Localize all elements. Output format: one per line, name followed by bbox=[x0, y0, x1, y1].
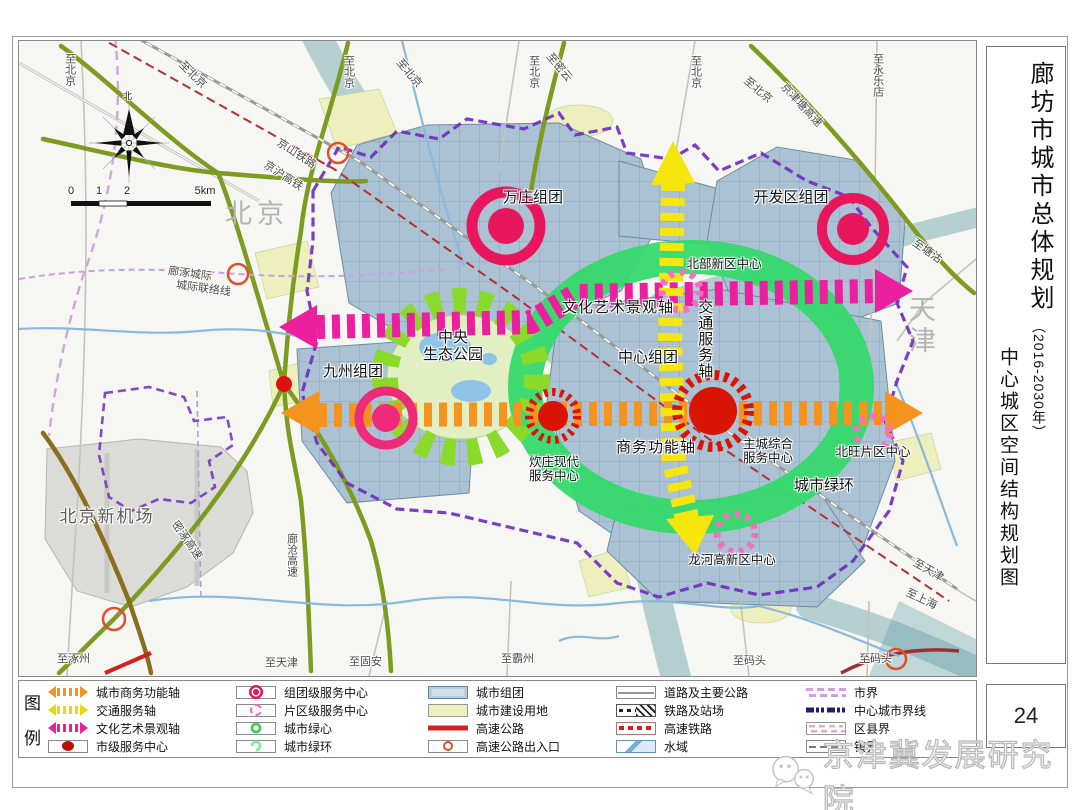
legend-label: 城市绿环 bbox=[284, 738, 332, 755]
legend-item: 高速公路 bbox=[428, 721, 606, 736]
legend-item: 文化艺术景观轴 bbox=[48, 721, 226, 736]
legend-swatch-town-boundary bbox=[806, 740, 846, 753]
legend-item: 市界 bbox=[806, 685, 976, 700]
legend-swatch-business-axis bbox=[48, 686, 88, 699]
legend-item: 高速铁路 bbox=[616, 721, 796, 736]
legend-label: 铁路及站场 bbox=[664, 702, 724, 719]
legend-item: 片区级服务中心 bbox=[236, 703, 418, 718]
legend-label: 文化艺术景观轴 bbox=[96, 720, 180, 737]
legend-swatch-construction-land bbox=[428, 704, 468, 717]
scale-tick-1: 1 bbox=[96, 185, 102, 198]
legend-swatch-district-center bbox=[236, 704, 276, 717]
legend-swatch-county-boundary bbox=[806, 722, 846, 735]
legend-item: 城市建设用地 bbox=[428, 703, 606, 718]
edge-label-b4: 至霸州 bbox=[501, 653, 534, 666]
legend-item: 道路及主要公路 bbox=[616, 685, 796, 700]
legend-label: 交通服务轴 bbox=[96, 702, 156, 719]
label-airport: 北京新机场 bbox=[60, 507, 155, 527]
map-area: 北 0 1 2 5km 北京 天津 北京新机场 万庄组团 开发区组团 九州组团 … bbox=[18, 40, 977, 677]
legend-swatch-central-city-boundary bbox=[806, 704, 846, 717]
legend-label: 城市绿心 bbox=[284, 720, 332, 737]
label-road-langcang: 廊沧高速 bbox=[285, 533, 298, 577]
legend-item: 交通服务轴 bbox=[48, 703, 226, 718]
planning-sheet: 北 0 1 2 5km 北京 天津 北京新机场 万庄组团 开发区组团 九州组团 … bbox=[0, 0, 1080, 810]
map-canvas bbox=[19, 41, 976, 676]
legend-item: 城市组团 bbox=[428, 685, 606, 700]
legend-swatch-green-heart bbox=[236, 722, 276, 735]
edge-label-t4: 至北京 bbox=[527, 55, 540, 88]
legend-item: 城市绿环 bbox=[236, 739, 418, 754]
legend-swatch-cluster-center bbox=[236, 686, 276, 699]
edge-label-b1: 至涿州 bbox=[57, 653, 90, 666]
title-panel: 廊坊市城市总体规划（2016-2030年） 中心城区空间结构规划图 bbox=[986, 46, 1066, 664]
label-cluster-jiuzhou: 九州组团 bbox=[323, 363, 383, 380]
legend-label: 高速铁路 bbox=[664, 720, 712, 737]
legend-label: 区县界 bbox=[854, 720, 890, 737]
legend-label: 高速公路出入口 bbox=[476, 738, 560, 755]
label-center-chuizhuang: 炊庄现代 服务中心 bbox=[529, 455, 579, 484]
legend-label: 片区级服务中心 bbox=[284, 702, 368, 719]
edge-label-l1: 至北京 bbox=[63, 53, 76, 86]
legend-swatch-expressway-exit bbox=[428, 740, 468, 753]
label-cluster-zhongxin: 中心组团 bbox=[618, 349, 678, 366]
legend-item: 组团级服务中心 bbox=[236, 685, 418, 700]
legend-item: 城市商务功能轴 bbox=[48, 685, 226, 700]
edge-label-t8: 至永乐店 bbox=[871, 53, 884, 97]
legend-label: 市级服务中心 bbox=[96, 738, 168, 755]
legend-swatch-city-boundary bbox=[806, 686, 846, 699]
legend-column-1: 城市商务功能轴 交通服务轴 文化艺术景观轴 市级服务中心 bbox=[48, 685, 226, 754]
edge-label-t6: 至北京 bbox=[689, 55, 702, 88]
legend-item: 区县界 bbox=[806, 721, 976, 736]
legend-item: 中心城市界线 bbox=[806, 703, 976, 718]
title-subtitle: 中心城区空间结构规划图 bbox=[994, 347, 1021, 589]
label-axis-business: 商务功能轴 bbox=[616, 439, 696, 456]
scale-tick-0: 0 bbox=[68, 185, 74, 198]
page-title: 廊坊市城市总体规划（2016-2030年） bbox=[1022, 61, 1057, 440]
legend-item: 城市绿心 bbox=[236, 721, 418, 736]
label-center-zhucheng: 主城综合 服务中心 bbox=[743, 437, 793, 466]
legend-swatch-green-ring bbox=[236, 740, 276, 753]
legend-swatch-city-center bbox=[48, 740, 88, 753]
label-center-beibu: 北部新区中心 bbox=[686, 257, 761, 271]
legend-panel: 图 例 城市商务功能轴 交通服务轴 文化艺术景观轴 市级服务中心 组团级服务中心… bbox=[18, 680, 977, 758]
legend-item: 镇界 bbox=[806, 739, 976, 754]
legend-swatch-traffic-axis bbox=[48, 704, 88, 717]
label-axis-traffic: 交通服务轴 bbox=[696, 299, 713, 379]
scale-tick-5km: 5km bbox=[195, 185, 216, 198]
legend-swatch-expressway bbox=[428, 722, 468, 735]
edge-label-b2: 至天津 bbox=[265, 657, 298, 670]
legend-swatch-hsr bbox=[616, 722, 656, 735]
legend-swatch-road bbox=[616, 686, 656, 699]
edge-label-b3: 至固安 bbox=[349, 656, 382, 669]
legend-column-5: 市界 中心城市界线 区县界 镇界 bbox=[806, 685, 976, 754]
page-number: 24 bbox=[986, 684, 1066, 748]
label-cluster-kaifaqu: 开发区组团 bbox=[753, 189, 828, 206]
legend-column-2: 组团级服务中心 片区级服务中心 城市绿心 城市绿环 bbox=[236, 685, 418, 754]
edge-label-t2: 至北京 bbox=[342, 55, 355, 88]
legend-label: 市界 bbox=[854, 684, 878, 701]
label-tianjin: 天津 bbox=[900, 295, 951, 357]
legend-swatch-railway bbox=[616, 704, 656, 717]
legend-title: 图 例 bbox=[19, 689, 48, 749]
legend-label: 城市建设用地 bbox=[476, 702, 548, 719]
edge-label-b5: 至码头 bbox=[733, 655, 766, 668]
interchange-dot bbox=[276, 376, 292, 392]
title-main: 廊坊市城市总体规划 bbox=[1026, 61, 1053, 313]
legend-swatch-water bbox=[616, 740, 656, 753]
label-axis-culture: 文化艺术景观轴 bbox=[562, 299, 674, 316]
scale-bar bbox=[71, 201, 211, 206]
legend-label: 镇界 bbox=[854, 738, 878, 755]
legend-swatch-culture-axis bbox=[48, 722, 88, 735]
legend-label: 道路及主要公路 bbox=[664, 684, 748, 701]
legend-label: 城市组团 bbox=[476, 684, 524, 701]
legend-label: 城市商务功能轴 bbox=[96, 684, 180, 701]
scale-tick-2: 2 bbox=[124, 185, 130, 198]
label-central-park: 中央 生态公园 bbox=[423, 329, 483, 364]
legend-item: 高速公路出入口 bbox=[428, 739, 606, 754]
edge-label-b6: 至码头 bbox=[859, 653, 892, 666]
label-center-longhe: 龙河高新区中心 bbox=[688, 553, 776, 567]
legend-item: 市级服务中心 bbox=[48, 739, 226, 754]
legend-column-3: 城市组团 城市建设用地 高速公路 高速公路出入口 bbox=[428, 685, 606, 754]
legend-title-top: 图 bbox=[24, 689, 43, 714]
compass-north-label: 北 bbox=[123, 91, 132, 101]
legend-title-bottom: 例 bbox=[24, 724, 43, 749]
legend-columns: 城市商务功能轴 交通服务轴 文化艺术景观轴 市级服务中心 组团级服务中心 片区级… bbox=[48, 685, 976, 754]
label-green-ring: 城市绿环 bbox=[794, 477, 854, 494]
label-center-beiwang: 北旺片区中心 bbox=[835, 445, 910, 459]
legend-label: 水域 bbox=[664, 738, 688, 755]
title-period: （2016-2030年） bbox=[1029, 319, 1049, 440]
legend-column-4: 道路及主要公路 铁路及站场 高速铁路 水域 bbox=[616, 685, 796, 754]
legend-label: 组团级服务中心 bbox=[284, 684, 368, 701]
legend-item: 铁路及站场 bbox=[616, 703, 796, 718]
label-cluster-wanzhuang: 万庄组团 bbox=[503, 189, 563, 206]
legend-label: 中心城市界线 bbox=[854, 702, 926, 719]
legend-item: 水域 bbox=[616, 739, 796, 754]
label-beijing: 北京 bbox=[225, 199, 289, 230]
legend-swatch-city-cluster bbox=[428, 686, 468, 699]
legend-label: 高速公路 bbox=[476, 720, 524, 737]
